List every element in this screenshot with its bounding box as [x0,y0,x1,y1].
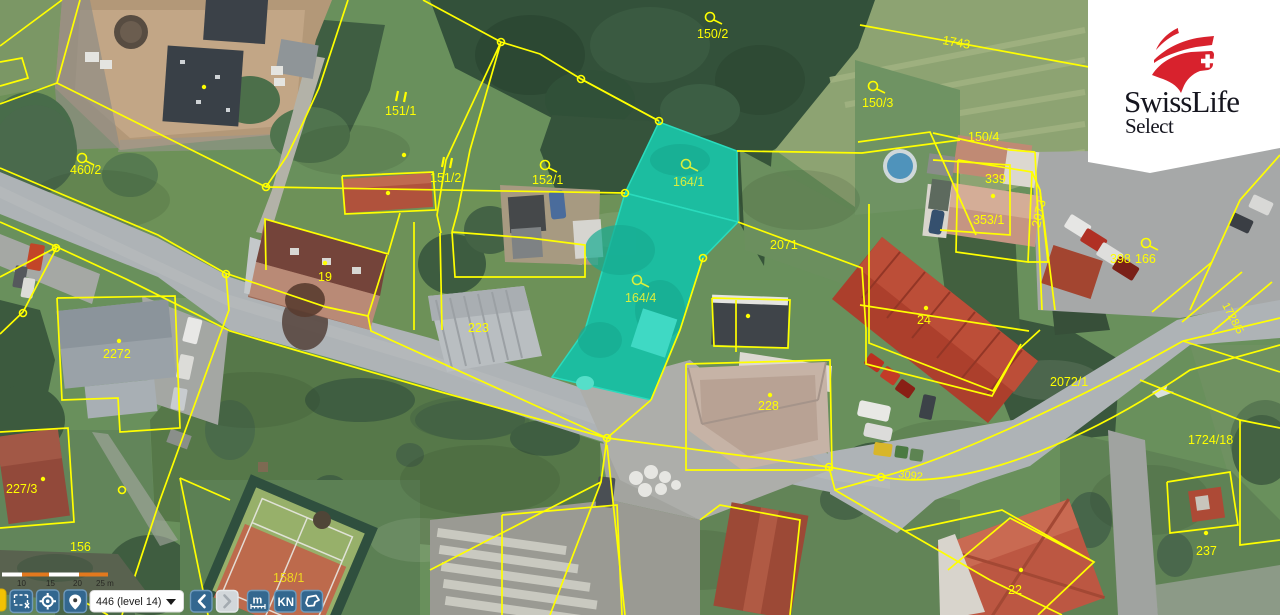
svg-text:223: 223 [468,321,489,335]
svg-text:150/2: 150/2 [697,27,728,41]
svg-text:19: 19 [318,270,332,284]
svg-text:25 m: 25 m [96,579,114,588]
svg-text:152/1: 152/1 [532,173,563,187]
svg-text:24: 24 [917,313,931,327]
svg-text:166: 166 [1135,252,1156,266]
svg-text:Select: Select [1125,114,1174,138]
svg-text:398: 398 [1110,252,1131,266]
svg-text:151/2: 151/2 [430,171,461,185]
svg-text:164/1: 164/1 [673,175,704,189]
svg-text:156: 156 [70,540,91,554]
svg-text:339: 339 [985,172,1006,186]
svg-text:KN: KN [278,597,295,609]
svg-text:150/3: 150/3 [862,96,893,110]
svg-text:151/1: 151/1 [385,104,416,118]
svg-text:2071: 2071 [770,238,798,252]
svg-text:158/1: 158/1 [273,571,304,585]
svg-text:150/4: 150/4 [968,130,999,144]
svg-text:1724/18: 1724/18 [1188,433,1233,447]
svg-text:353/1: 353/1 [973,213,1004,227]
svg-text:237: 237 [1196,544,1217,558]
svg-text:446 (level 14): 446 (level 14) [96,596,161,608]
svg-text:20: 20 [73,579,82,588]
svg-text:15: 15 [46,579,55,588]
svg-text:227/3: 227/3 [6,482,37,496]
svg-text:2072/1: 2072/1 [1050,375,1088,389]
svg-text:228: 228 [758,399,779,413]
svg-text:2272: 2272 [103,347,131,361]
svg-text:m: m [253,595,263,607]
svg-text:22: 22 [1008,583,1022,597]
svg-text:460/2: 460/2 [70,163,101,177]
svg-text:10: 10 [17,579,26,588]
svg-text:164/4: 164/4 [625,291,656,305]
